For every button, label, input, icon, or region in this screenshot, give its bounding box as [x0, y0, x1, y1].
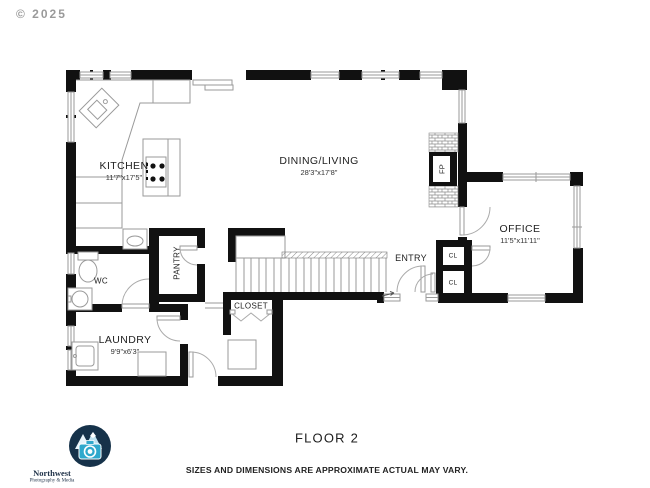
- windows-layer: [68, 72, 582, 370]
- dining-living-name: DINING/LIVING: [279, 155, 358, 167]
- corner-sink-icon: [79, 88, 119, 128]
- room-label-cl-lower: CL: [449, 280, 458, 287]
- floor-title: FLOOR 2: [295, 431, 359, 446]
- room-label-kitchen: KITCHEN 11'7"x17'5": [100, 160, 149, 182]
- room-label-closet: CLOSET: [234, 302, 268, 311]
- kitchen-name: KITCHEN: [100, 160, 149, 172]
- room-label-fp: FP: [437, 164, 446, 174]
- floorplan-page: © 2025 KITCHEN 11'7"x17'5" DINING/LIVING…: [0, 0, 650, 488]
- vestibule-cabinet-icon: [228, 340, 256, 369]
- room-label-entry: ENTRY: [395, 253, 427, 263]
- room-label-cl-upper: CL: [449, 253, 458, 260]
- company-logo-icon: [30, 424, 150, 468]
- floorplan-drawing: [0, 0, 650, 488]
- laundry-name: LAUNDRY: [99, 334, 152, 346]
- room-label-office: OFFICE 11'5"x11'11": [500, 223, 541, 245]
- office-dims: 11'5"x11'11": [500, 236, 541, 245]
- office-name: OFFICE: [500, 223, 541, 235]
- kitchen-dims: 11'7"x17'5": [100, 173, 149, 182]
- logo-subtitle-text: Photography & Media: [30, 479, 75, 484]
- room-label-pantry: PANTRY: [173, 246, 182, 280]
- room-label-laundry: LAUNDRY 9'9"x6'3": [99, 334, 152, 356]
- island-cooktop-icon: [143, 139, 180, 196]
- stair-railing: [282, 252, 387, 258]
- logo-name-text: Northwest: [33, 468, 71, 478]
- disclaimer-text: SIZES AND DIMENSIONS ARE APPROXIMATE ACT…: [186, 465, 468, 475]
- room-label-wc: WC: [94, 277, 108, 286]
- staircase: [236, 236, 394, 296]
- copyright-text: © 2025: [16, 7, 67, 21]
- laundry-sink-icon: [72, 342, 98, 370]
- wc-sink-icon: [68, 288, 92, 310]
- room-label-dining-living: DINING/LIVING 28'3"x17'8": [279, 155, 358, 177]
- laundry-dims: 9'9"x6'3": [99, 347, 152, 356]
- dining-living-dims: 28'3"x17'8": [279, 168, 358, 177]
